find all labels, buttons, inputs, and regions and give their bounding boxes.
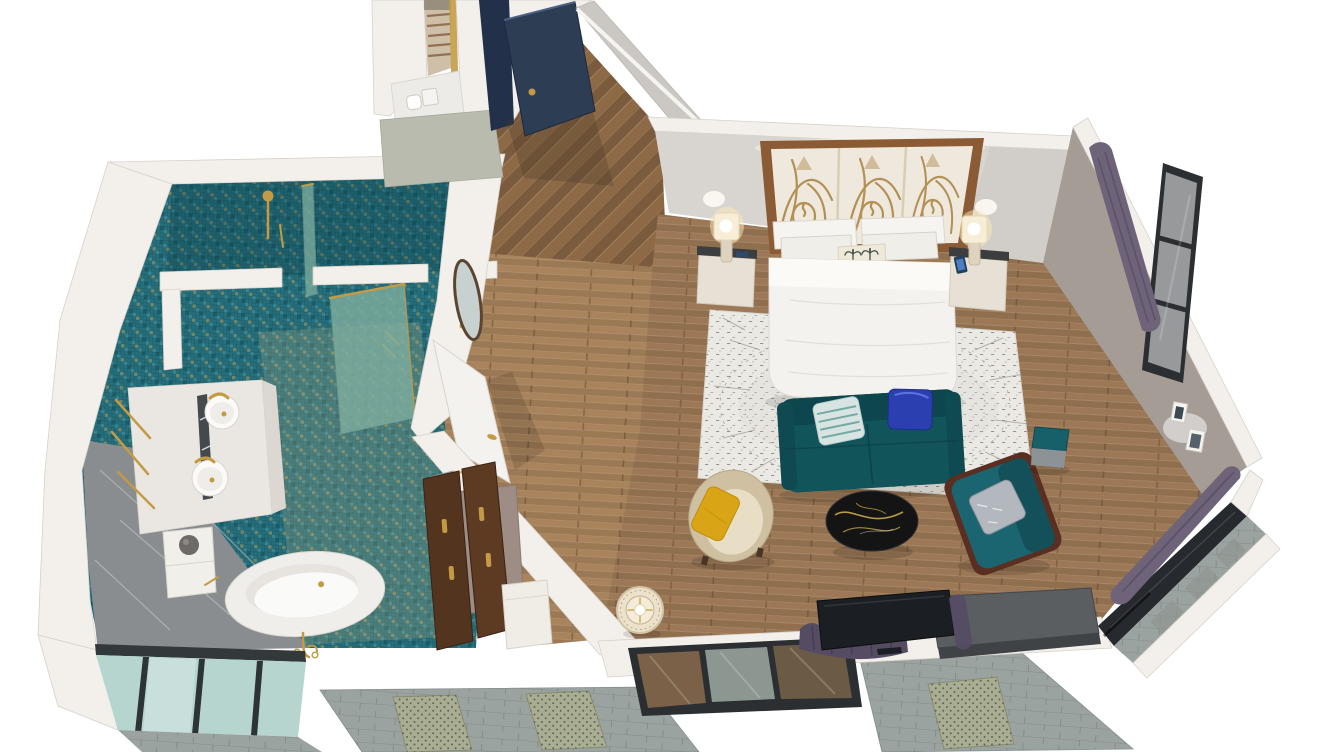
entry-door-handle (529, 89, 536, 96)
luggage-bench (502, 580, 552, 649)
lamp-wall-glow-left (703, 191, 725, 207)
towel-basket (179, 535, 199, 555)
rain-shower-head (263, 191, 274, 202)
blue-pillow (888, 389, 933, 430)
thick-wall-top (380, 110, 503, 187)
linen-closet-interior (424, 0, 451, 76)
teal-cube-stool (1030, 427, 1070, 475)
floorplan-render (0, 0, 1336, 752)
striped-pillow (812, 396, 865, 446)
teal-sofa (773, 384, 971, 506)
bath-storage-cabinet (163, 527, 218, 598)
shower-glass-panel-large (330, 284, 415, 434)
suite-floorplan-svg (0, 0, 1336, 752)
stool-top (1032, 427, 1069, 451)
coffee-table-top (826, 491, 918, 551)
book (736, 252, 748, 258)
marble-coffee-table (826, 491, 918, 560)
double-vanity (112, 380, 286, 534)
bathroom-window (95, 644, 306, 737)
